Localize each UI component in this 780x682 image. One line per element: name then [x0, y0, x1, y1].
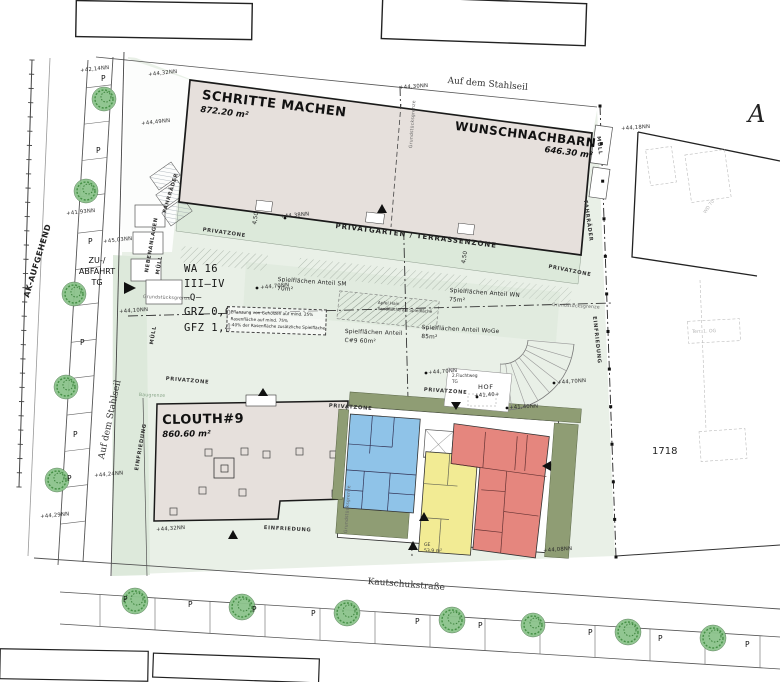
tree [700, 625, 726, 651]
unit-blue [344, 414, 421, 513]
neighbor-building-bottomleft [0, 649, 148, 682]
neighbor-building-bottommid [153, 653, 320, 682]
neighbor-building-topright [381, 0, 586, 46]
unit-yellow [419, 452, 478, 556]
tree [334, 600, 360, 626]
plan-drawing [0, 0, 780, 682]
tree [439, 607, 465, 633]
unit-block [329, 391, 582, 562]
tree [615, 619, 641, 645]
neighbor-building-right [638, 132, 780, 161]
tree [122, 588, 148, 614]
tree [229, 594, 255, 620]
site-plan: Auf dem Stahlseil Auf dem Stahlseil AK-A… [0, 0, 780, 682]
neighbor-building-topleft [76, 1, 253, 40]
